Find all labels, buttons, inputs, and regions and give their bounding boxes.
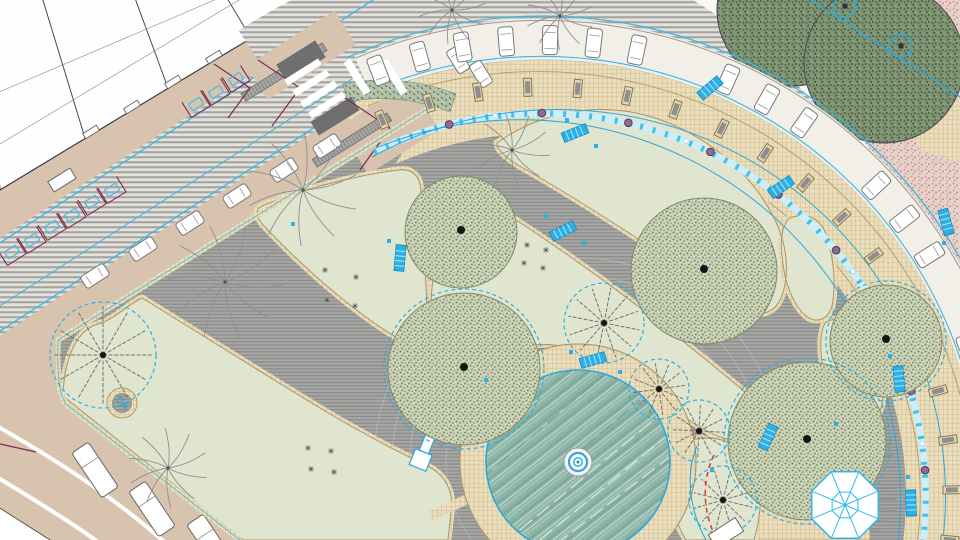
site-marker [544, 214, 548, 218]
tree-trunk-dot [460, 363, 468, 371]
sprinkler [328, 448, 334, 454]
sprinkler [308, 466, 314, 472]
site-marker [594, 144, 598, 148]
tree-trunk-dot [700, 265, 708, 273]
palm-trunk-dot [696, 428, 702, 434]
channel-node [683, 139, 688, 144]
site-marker [906, 475, 910, 479]
site-marker [387, 239, 391, 243]
park-bench [394, 245, 406, 272]
litter-bin [707, 148, 715, 156]
site-marker [291, 222, 295, 226]
sprinkler [322, 267, 328, 273]
site-marker [569, 350, 573, 354]
sprinkler [331, 469, 337, 475]
site-marker [484, 378, 488, 382]
litter-bin [625, 119, 633, 127]
site-marker [618, 370, 622, 374]
site-marker [942, 241, 946, 245]
palm-trunk-dot [100, 352, 106, 358]
channel-node [920, 441, 925, 446]
tree-trunk-dot [457, 226, 465, 234]
fountain [564, 448, 592, 476]
site-marker [710, 468, 714, 472]
tree-trunk-dot [882, 335, 890, 343]
parked-car [585, 28, 603, 59]
sprinkler [543, 247, 549, 253]
palm-trunk-dot [720, 497, 726, 503]
site-marker [834, 422, 838, 426]
channel-node [493, 113, 498, 118]
ring-bench [943, 486, 960, 494]
trunk-square [843, 4, 848, 9]
channel-node [850, 269, 855, 274]
park-bench [893, 366, 905, 393]
site-plan-canvas [0, 0, 960, 540]
sprinkler [540, 265, 546, 271]
palm-trunk-dot [656, 386, 662, 392]
drinking-fountain-plaza [107, 388, 137, 418]
parked-car [498, 26, 515, 56]
sprinkler [524, 242, 530, 248]
sprinkler [521, 260, 527, 266]
parked-car [542, 25, 558, 54]
trunk-square [899, 44, 904, 49]
sprinkler [353, 274, 359, 280]
octagonal-pavilion [812, 472, 879, 539]
site-marker [565, 118, 569, 122]
palm-trunk-dot [601, 320, 607, 326]
ring-bench [573, 79, 583, 98]
tree-trunk-dot [803, 435, 811, 443]
litter-bin [445, 121, 453, 129]
sprinkler [305, 445, 311, 451]
sprinkler [324, 297, 330, 303]
ring-bench [523, 78, 532, 96]
site-marker [582, 241, 586, 245]
litter-bin [538, 109, 546, 117]
park-bench [906, 490, 917, 516]
litter-bin [921, 466, 929, 474]
litter-bin [832, 246, 840, 254]
site-plan-drawing [0, 0, 960, 540]
site-marker [888, 354, 892, 358]
sprinkler [352, 303, 358, 309]
